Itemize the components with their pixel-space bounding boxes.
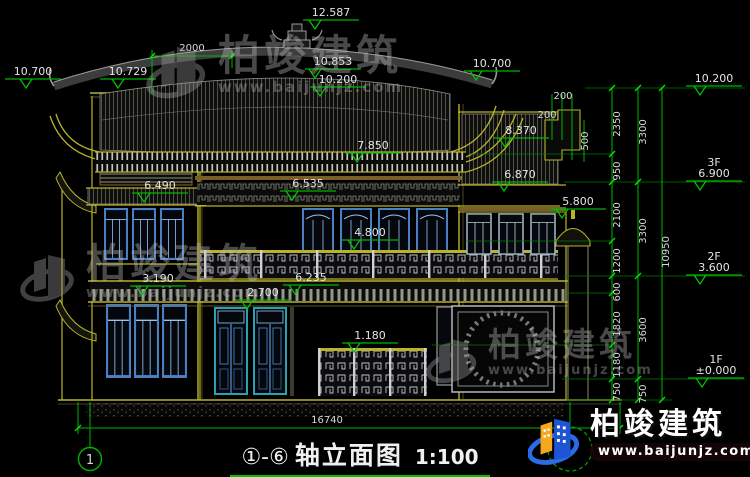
- wing-window: [499, 214, 523, 254]
- elevation-marker-ridge: 12.587: [303, 6, 359, 29]
- wing-window: [531, 214, 555, 254]
- tower-window: [105, 209, 127, 259]
- entry-door: [215, 308, 247, 394]
- svg-text:1200: 1200: [612, 248, 623, 273]
- brand-logo-icon: [528, 408, 586, 470]
- svg-text:5.800: 5.800: [562, 195, 594, 208]
- svg-text:10.729: 10.729: [109, 65, 148, 78]
- tower-window: [107, 305, 130, 376]
- svg-text:1: 1: [86, 453, 94, 468]
- tower-window: [163, 305, 186, 376]
- svg-text:6.490: 6.490: [144, 179, 176, 192]
- svg-text:10.853: 10.853: [314, 55, 353, 68]
- svg-text:200: 200: [553, 91, 572, 102]
- svg-text:12.587: 12.587: [312, 6, 351, 19]
- right-dim-chain-inner: 2350 950 2100 1200 600 1820 1180 750: [612, 111, 623, 401]
- svg-text:3.190: 3.190: [142, 272, 174, 285]
- svg-text:3300: 3300: [638, 119, 649, 144]
- svg-text:950: 950: [612, 161, 623, 180]
- svg-text:10950: 10950: [661, 236, 672, 268]
- svg-text:6.235: 6.235: [295, 271, 327, 284]
- right-dim-total: 10950: [661, 236, 672, 268]
- svg-text:10.200: 10.200: [319, 73, 358, 86]
- main-roof: [50, 24, 524, 172]
- elevation-marker-right-parapet: 10.200: [686, 72, 742, 95]
- brand-logo: 柏竣建筑 www.baijunjz.com: [528, 408, 750, 470]
- svg-text:3.600: 3.600: [698, 261, 730, 274]
- svg-text:4.800: 4.800: [354, 226, 386, 239]
- title-scale: 1:100: [415, 445, 479, 469]
- elevation-marker-floor2: 2F 3.600: [686, 250, 742, 284]
- rafter-band: [95, 152, 466, 172]
- tower-window: [133, 209, 155, 259]
- svg-text:750: 750: [638, 384, 649, 403]
- garden-wall: [556, 210, 590, 400]
- moon-panel: [452, 306, 554, 392]
- svg-text:200: 200: [537, 110, 556, 121]
- entry-door: [254, 308, 286, 394]
- bracket-band: [197, 182, 460, 205]
- title-name: 轴立面图: [295, 436, 403, 472]
- cad-viewport: 2350 950 2100 1200 600 1820 1180 750 330…: [0, 0, 750, 477]
- elevation-marker-left-eave-inner: 10.729: [100, 65, 156, 88]
- svg-text:1.180: 1.180: [354, 329, 386, 342]
- svg-text:1820: 1820: [612, 311, 623, 336]
- elevation-drawing: 2350 950 2100 1200 600 1820 1180 750 330…: [0, 0, 750, 477]
- f2-window: [417, 209, 447, 253]
- svg-text:2.700: 2.700: [247, 286, 279, 299]
- svg-text:3600: 3600: [638, 317, 649, 342]
- brand-logo-text: 柏竣建筑: [590, 408, 750, 441]
- svg-text:10.700: 10.700: [14, 65, 53, 78]
- brand-logo-url: www.baijunjz.com: [590, 443, 750, 461]
- svg-text:10.200: 10.200: [695, 72, 734, 85]
- elevation-marker-floor1: 1F ±0.000: [688, 353, 744, 387]
- tower-window: [161, 209, 183, 259]
- svg-text:2350: 2350: [612, 111, 623, 136]
- svg-text:1180: 1180: [612, 352, 623, 377]
- svg-text:±0.000: ±0.000: [696, 364, 737, 377]
- svg-text:6.870: 6.870: [504, 168, 536, 181]
- f1-porch-railing: [318, 348, 427, 396]
- elevation-marker-floor3: 3F 6.900: [686, 156, 742, 190]
- svg-text:6.535: 6.535: [292, 177, 324, 190]
- svg-text:500: 500: [580, 131, 591, 150]
- svg-text:2000: 2000: [179, 43, 204, 54]
- drawing-title: ①-⑥轴立面图1:100: [230, 436, 490, 477]
- svg-text:16740: 16740: [311, 415, 343, 426]
- right-dim-chain-mid: 3300 3300 3600 750: [638, 119, 649, 403]
- svg-text:10.700: 10.700: [473, 57, 512, 70]
- wing-window: [467, 214, 491, 254]
- svg-text:8.370: 8.370: [505, 124, 537, 137]
- title-axis-range: ①-⑥: [241, 445, 288, 470]
- svg-text:7.850: 7.850: [357, 139, 389, 152]
- svg-text:2100: 2100: [612, 202, 623, 227]
- f2-window: [303, 209, 333, 253]
- svg-text:750: 750: [612, 382, 623, 401]
- svg-text:6.900: 6.900: [698, 167, 730, 180]
- tower-window: [135, 305, 158, 376]
- svg-text:3300: 3300: [638, 218, 649, 243]
- svg-text:600: 600: [612, 282, 623, 301]
